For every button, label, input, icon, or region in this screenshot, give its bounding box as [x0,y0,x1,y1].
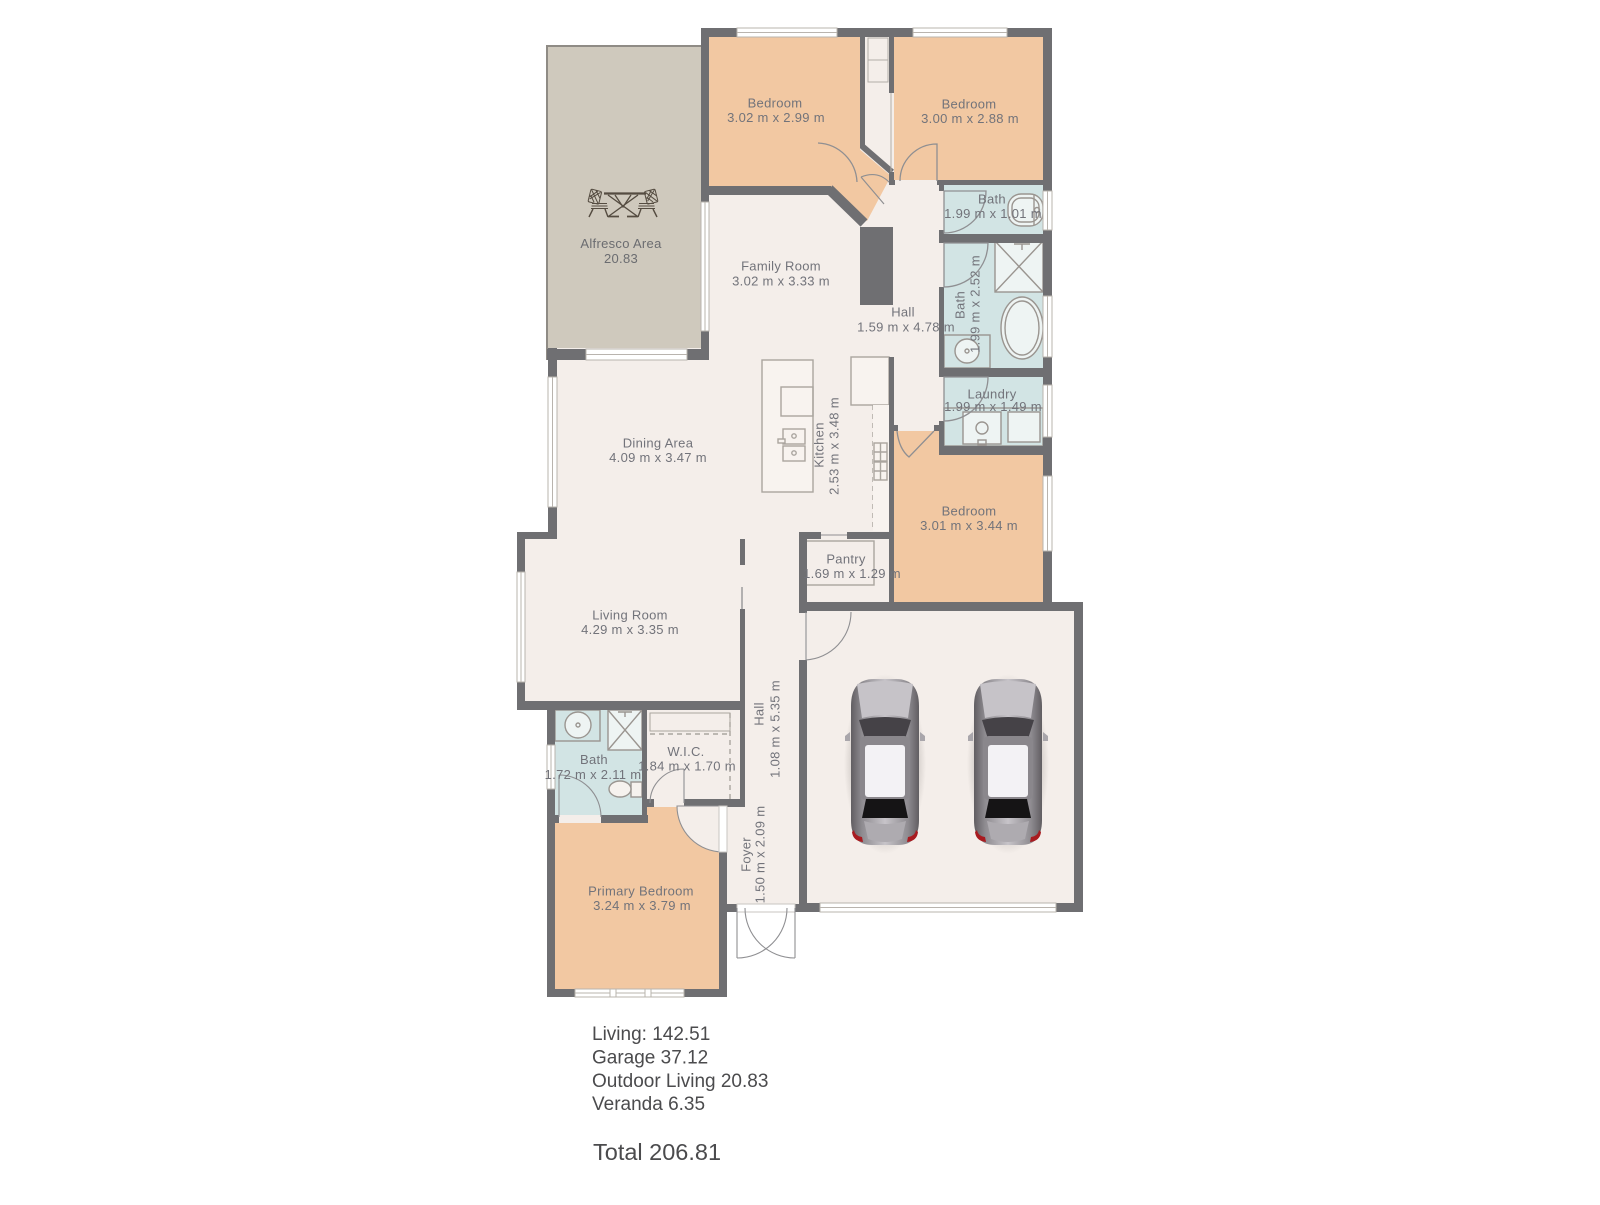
svg-text:Bath: Bath [953,291,968,319]
svg-text:4.09 m x 3.47 m: 4.09 m x 3.47 m [609,450,707,465]
svg-text:Bath: Bath [580,752,608,767]
svg-text:20.83: 20.83 [604,251,638,266]
svg-text:Primary Bedroom: Primary Bedroom [588,884,694,899]
svg-text:Hall: Hall [891,305,915,320]
svg-text:3.02 m x 2.99 m: 3.02 m x 2.99 m [727,110,825,125]
svg-text:Living Room: Living Room [592,608,668,623]
svg-text:3.24 m x 3.79 m: 3.24 m x 3.79 m [593,898,691,913]
svg-text:1.72 m x 2.11 m: 1.72 m x 2.11 m [545,767,642,782]
svg-text:Bedroom: Bedroom [942,504,997,519]
svg-text:Bedroom: Bedroom [748,96,803,111]
svg-text:1.84 m x 1.70 m: 1.84 m x 1.70 m [638,759,736,774]
svg-text:3.02 m x 3.33 m: 3.02 m x 3.33 m [732,274,830,289]
svg-text:1.99 m x 1.01 m: 1.99 m x 1.01 m [944,206,1042,221]
svg-text:1.99 m x 1.49 m: 1.99 m x 1.49 m [944,399,1042,414]
svg-text:1.50 m x 2.09 m: 1.50 m x 2.09 m [753,806,768,904]
svg-text:Bath: Bath [978,192,1006,207]
svg-text:W.I.C.: W.I.C. [667,744,704,759]
svg-text:Outdoor Living 20.83: Outdoor Living 20.83 [592,1071,768,1092]
svg-text:Hall: Hall [752,702,767,726]
svg-text:Dining Area: Dining Area [623,436,694,451]
svg-text:1.69 m x 1.29 m: 1.69 m x 1.29 m [803,566,901,581]
svg-text:1.99 m x 2.52 m: 1.99 m x 2.52 m [968,255,983,353]
svg-text:Pantry: Pantry [826,552,866,567]
svg-text:3.00 m x 2.88 m: 3.00 m x 2.88 m [921,111,1019,126]
svg-text:Foyer: Foyer [739,837,754,872]
svg-text:Family Room: Family Room [741,259,821,274]
svg-text:2.53 m x 3.48 m: 2.53 m x 3.48 m [827,397,842,495]
svg-text:Veranda 6.35: Veranda 6.35 [592,1094,705,1115]
svg-text:Living: 142.51: Living: 142.51 [592,1024,710,1045]
svg-text:3.01 m x 3.44 m: 3.01 m x 3.44 m [920,518,1018,533]
svg-text:Bedroom: Bedroom [942,97,997,112]
svg-text:Total 206.81: Total 206.81 [593,1139,721,1165]
svg-text:1.08 m x 5.35 m: 1.08 m x 5.35 m [768,680,783,778]
svg-text:Garage 37.12: Garage 37.12 [592,1047,708,1068]
svg-text:Kitchen: Kitchen [812,422,827,467]
svg-text:4.29 m x 3.35 m: 4.29 m x 3.35 m [581,622,679,637]
svg-text:1.59 m x 4.78 m: 1.59 m x 4.78 m [857,320,955,335]
svg-text:Alfresco Area: Alfresco Area [580,236,662,251]
